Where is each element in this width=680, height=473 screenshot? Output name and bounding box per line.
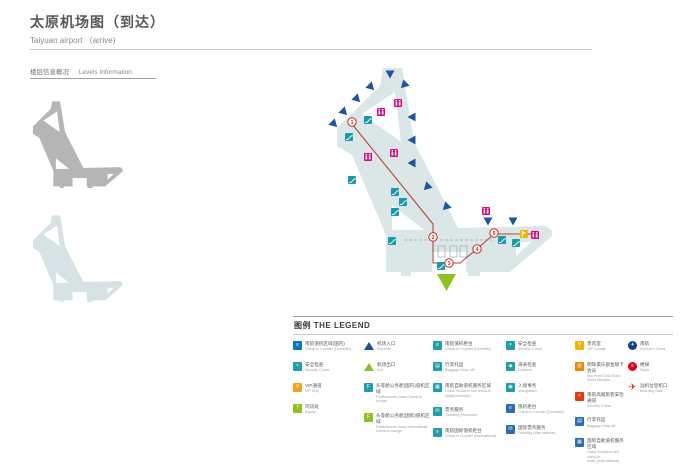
legend-item: F头等舱公务舱(国内)值机区域Fst/Business Class Check-… (364, 383, 433, 404)
legend-item: VVIP通道VIP Only (293, 383, 364, 395)
restroom-icon (482, 207, 490, 215)
escalator-icon (345, 133, 353, 141)
legend-label-zh: 明珠俱乐部金银卡会员 (587, 362, 628, 373)
legend-label-en: Entrance (377, 347, 433, 351)
airport-map-page: 太原机场图（到达） Taiyuan airport （arrive) 楼层信息概… (0, 0, 680, 425)
header: 太原机场图（到达） Taiyuan airport （arrive) (30, 12, 592, 50)
legend-marker-icon: V (293, 383, 302, 392)
legend-label-en: Immigration (518, 389, 575, 393)
legend-label-en: Security Check (518, 347, 575, 351)
escalator-icon (437, 262, 445, 270)
legend-label-en: Ticketing (Domestic) (445, 413, 506, 417)
legend-triangle-icon (364, 342, 374, 350)
legend-marker-icon: ≡ (628, 362, 637, 371)
route-stop-marker: 1 (348, 118, 356, 126)
restroom-icon (364, 153, 372, 161)
levels-label: 楼层信息概况 Levels Information (30, 66, 156, 79)
legend-column: ≡南航值机柜台Check-in Counter (Domestic)▤行李托运B… (433, 341, 506, 473)
legend-item: 机场出口Exit (364, 362, 433, 374)
legend-item: ◆海关检查Customs (506, 362, 575, 374)
floor-thumbnail-arrival[interactable] (30, 212, 126, 302)
legend-marker-icon: × (575, 392, 584, 401)
legend-panel: 图例 THE LEGEND ≡南航值机区域(国内)Check-in Counte… (293, 316, 673, 473)
legend-column: 机场入口Entrance机场出口ExitF头等舱公务舱(国内)值机区域Fst/B… (364, 341, 433, 473)
legend-label-en: Sky Pearl Club Gold/ Silver Member (587, 374, 628, 383)
legend-item: ✈远机位登机口Boarding Gate (628, 383, 673, 395)
legend-label-zh: 安全检查 (518, 341, 575, 347)
legend-marker-icon: ✈ (628, 341, 637, 350)
restroom-icon (394, 99, 402, 107)
levels-label-zh: 楼层信息概况 (30, 69, 69, 76)
legend-label-zh: 行李托运 (445, 362, 506, 368)
route-stop-marker: 2 (429, 233, 437, 241)
levels-panel: 楼层信息概况 Levels Information (30, 66, 160, 79)
escalator-icon (512, 239, 520, 247)
legend-label-en: Check-in Counter (Domestic) (445, 347, 506, 351)
legend-column: ×安全检查Security Check◆海关检查Customs◉入境事务Immi… (506, 341, 575, 473)
legend-label-en: Fst/Business Class Check-in lounge (376, 395, 433, 404)
page-title: 太原机场图（到达） (30, 12, 592, 32)
legend-column: ✈南航Southern China≡楼梯Steps✈远机位登机口Boarding… (628, 341, 673, 473)
legend-marker-icon: ▦ (433, 383, 442, 392)
legend-label-en: Exit (377, 368, 433, 372)
legend-column: ≡南航值机区域(国内)Check-in Counter (Domestic)×安… (293, 341, 364, 473)
legend-item: ×安全检查Security Check (293, 362, 364, 374)
exit-triangle-icon (437, 274, 456, 291)
page-subtitle: Taiyuan airport （arrive) (30, 35, 592, 46)
restroom-icon (377, 108, 385, 116)
legend-label-zh: 机场出口 (377, 362, 433, 368)
legend-label-en: China Southern self check-in kiosk_(Inte… (587, 450, 628, 463)
gate-triangle-icon (351, 93, 363, 105)
legend-marker-icon: ◆ (506, 362, 515, 371)
legend-label-zh: 入境事务 (518, 383, 575, 389)
legend-label-en: Customs (518, 368, 575, 372)
legend-label-en: Baggage Drop-off (587, 424, 628, 428)
legend-item: ▦国际自助值机服务区域China Southern self check-in … (575, 438, 628, 463)
legend-label-zh: 值机柜台 (518, 404, 575, 410)
gate-triangle-icon (509, 218, 518, 226)
legend-marker-icon: F (364, 383, 373, 392)
svg-text:1: 1 (351, 120, 354, 126)
legend-marker-icon: ≡ (506, 404, 515, 413)
legend-label-zh: 行李托运 (587, 417, 628, 423)
legend-columns: ≡南航值机区域(国内)Check-in Counter (Domestic)×安… (293, 341, 673, 473)
legend-marker-icon: ≡ (433, 341, 442, 350)
legend-item: ≡楼梯Steps (628, 362, 673, 374)
legend-marker-icon: ▦ (575, 438, 584, 447)
airport-map: 12345 (325, 55, 565, 307)
legend-marker-icon: ✉ (506, 425, 515, 434)
gate-triangle-icon (338, 106, 350, 118)
legend-label-en: VIP Lounge (587, 347, 628, 351)
legend-triangle-icon (364, 363, 374, 371)
legend-label-zh: 贵宾室 (587, 341, 628, 347)
legend-label-zh: 海关检查 (518, 362, 575, 368)
legend-marker-icon: ? (293, 404, 302, 413)
legend-label-en: Check-in Counter (International) (445, 434, 506, 438)
escalator-icon (391, 188, 399, 196)
escalator-icon (498, 236, 506, 244)
legend-item: V贵宾室VIP Lounge (575, 341, 628, 353)
vip-lounge-icon (520, 230, 528, 238)
svg-text:5: 5 (493, 231, 496, 237)
legend-label-en: Fst/Business Class International Check-i… (376, 425, 433, 434)
legend-item: ×安全检查Security Check (506, 341, 575, 353)
legend-label-zh: 远机位登机口 (640, 383, 673, 389)
legend-item: ✈南航Southern China (628, 341, 673, 353)
legend-label-zh: 国际票务服务 (518, 425, 575, 431)
legend-label-en: Southern China (640, 347, 673, 351)
legend-item: ▤行李托运Baggage Drop-off (575, 417, 628, 429)
legend-label-zh: 南航高端旅客安检通道 (587, 392, 628, 403)
legend-label-zh: 机场入口 (377, 341, 433, 347)
legend-label-zh: 国际自助值机服务区域 (587, 438, 628, 449)
legend-label-en: VIP Only (305, 389, 364, 393)
legend-label-zh: 南航 (640, 341, 673, 347)
legend-item: ?问讯处Inquiry (293, 404, 364, 416)
legend-column: V贵宾室VIP Lounge▥明珠俱乐部金银卡会员Sky Pearl Club … (575, 341, 628, 473)
legend-item: ≡南航国际值机柜台Check-in Counter (International… (433, 428, 506, 440)
legend-label-en: Boarding Gate (640, 389, 673, 393)
route-stop-marker: 3 (445, 259, 453, 267)
legend-label-zh: 楼梯 (640, 362, 673, 368)
legend-label-zh: 南航自助值机服务区域 (445, 383, 506, 389)
escalator-icon (391, 208, 399, 216)
legend-label-en: Security Check (305, 368, 364, 372)
legend-label-zh: 南航值机柜台 (445, 341, 506, 347)
route-stop-marker: 4 (473, 245, 481, 253)
legend-marker-icon: ▥ (575, 362, 584, 371)
legend-marker-icon: ✉ (433, 407, 442, 416)
legend-label-zh: 问讯处 (305, 404, 364, 410)
svg-text:2: 2 (432, 235, 435, 241)
legend-item: ≡值机柜台Check-in Counter (Domestic) (506, 404, 575, 416)
legend-label-en: Steps (640, 368, 673, 372)
legend-marker-icon: ▤ (433, 362, 442, 371)
escalator-icon (399, 198, 407, 206)
legend-item: ≡南航值机柜台Check-in Counter (Domestic) (433, 341, 506, 353)
legend-label-zh: VIP通道 (305, 383, 364, 389)
legend-item: ×南航高端旅客安检通道Security Check (575, 392, 628, 408)
svg-text:3: 3 (448, 261, 451, 267)
escalator-icon (364, 116, 372, 124)
legend-label-en: Security Check (587, 404, 628, 408)
legend-item: F头等舱公务舱(国际)值机区域Fst/Business Class Intern… (364, 413, 433, 434)
legend-item: ▤行李托运Baggage Drop- off (433, 362, 506, 374)
legend-label-en: Check-in Counter (Domestic) (305, 347, 364, 351)
legend-item: ▥明珠俱乐部金银卡会员Sky Pearl Club Gold/ Silver M… (575, 362, 628, 383)
legend-marker-icon: × (293, 362, 302, 371)
legend-label-zh: 南航国际值机柜台 (445, 428, 506, 434)
floor-thumbnail-upper[interactable] (30, 98, 126, 188)
levels-label-en: Levels Information (79, 69, 132, 76)
legend-marker-icon: ≡ (433, 428, 442, 437)
route-stop-marker: 5 (490, 229, 498, 237)
escalator-icon (348, 176, 356, 184)
legend-marker-icon: ▤ (575, 417, 584, 426)
legend-title: 图例 THE LEGEND (293, 316, 673, 335)
legend-label-zh: 南航值机区域(国内) (305, 341, 364, 347)
legend-marker-icon: ◉ (506, 383, 515, 392)
legend-label-en: Inquiry (305, 410, 364, 414)
legend-label-en: Ticketing (International) (518, 431, 575, 435)
legend-label-zh: 票务服务 (445, 407, 506, 413)
legend-label-en: Baggage Drop- off (445, 368, 506, 372)
legend-marker-icon: F (364, 413, 373, 422)
header-divider (30, 49, 592, 50)
legend-item: 机场入口Entrance (364, 341, 433, 353)
legend-label-en: China Southern self check-in kiosk(Domes… (445, 389, 506, 398)
legend-item: ≡南航值机区域(国内)Check-in Counter (Domestic) (293, 341, 364, 353)
legend-item: ▦南航自助值机服务区域China Southern self check-in … (433, 383, 506, 398)
legend-marker-icon: ≡ (293, 341, 302, 350)
gate-triangle-icon (484, 218, 493, 226)
legend-marker-icon: × (506, 341, 515, 350)
legend-marker-icon: V (575, 341, 584, 350)
legend-item: ✉票务服务Ticketing (Domestic) (433, 407, 506, 419)
legend-label-zh: 头等舱公务舱(国际)值机区域 (376, 413, 433, 424)
legend-label-zh: 头等舱公务舱(国内)值机区域 (376, 383, 433, 394)
escalator-icon (388, 237, 396, 245)
legend-item: ✉国际票务服务Ticketing (International) (506, 425, 575, 437)
legend-label-zh: 安全检查 (305, 362, 364, 368)
boarding-gate-plane-icon: ✈ (628, 383, 637, 392)
svg-text:4: 4 (476, 247, 479, 253)
restroom-icon (390, 149, 398, 157)
legend-item: ◉入境事务Immigration (506, 383, 575, 395)
restroom-icon (531, 231, 539, 239)
legend-label-en: Check-in Counter (Domestic) (518, 410, 575, 414)
